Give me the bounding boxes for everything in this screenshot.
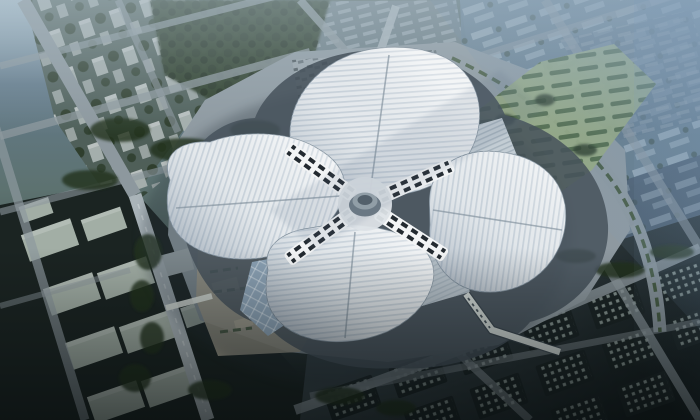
bottom-vignette xyxy=(0,248,700,420)
aerial-rendering xyxy=(0,0,700,420)
aerial-rendering-svg xyxy=(0,0,700,420)
right-edge-mist xyxy=(634,0,700,420)
